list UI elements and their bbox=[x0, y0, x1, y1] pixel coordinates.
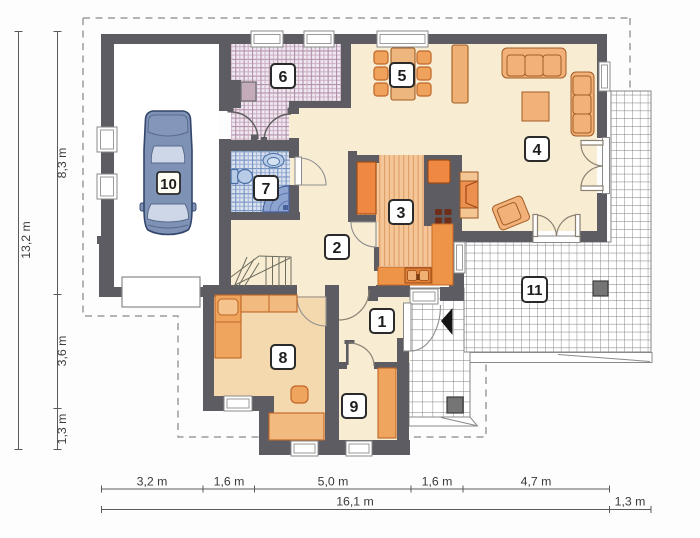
svg-text:7: 7 bbox=[262, 181, 271, 198]
svg-text:13,2 m: 13,2 m bbox=[19, 221, 33, 259]
svg-text:8: 8 bbox=[279, 350, 288, 367]
svg-text:16,1 m: 16,1 m bbox=[336, 495, 374, 509]
svg-text:8,3 m: 8,3 m bbox=[55, 148, 69, 179]
svg-text:3,2 m: 3,2 m bbox=[137, 475, 168, 489]
svg-text:1,3 m: 1,3 m bbox=[55, 414, 69, 445]
svg-text:1,6 m: 1,6 m bbox=[214, 475, 245, 489]
svg-text:3,6 m: 3,6 m bbox=[55, 336, 69, 367]
svg-text:4: 4 bbox=[533, 142, 542, 159]
svg-text:5: 5 bbox=[398, 68, 407, 85]
svg-text:3: 3 bbox=[397, 205, 406, 222]
svg-text:11: 11 bbox=[527, 282, 543, 299]
svg-text:10: 10 bbox=[160, 176, 177, 193]
svg-text:2: 2 bbox=[333, 240, 342, 257]
svg-text:4,7 m: 4,7 m bbox=[521, 475, 552, 489]
svg-text:5,0 m: 5,0 m bbox=[318, 475, 349, 489]
svg-text:1,6 m: 1,6 m bbox=[422, 475, 453, 489]
svg-text:1: 1 bbox=[378, 314, 387, 331]
svg-text:1,3 m: 1,3 m bbox=[615, 495, 646, 509]
svg-text:9: 9 bbox=[350, 399, 359, 416]
svg-text:6: 6 bbox=[279, 69, 288, 86]
